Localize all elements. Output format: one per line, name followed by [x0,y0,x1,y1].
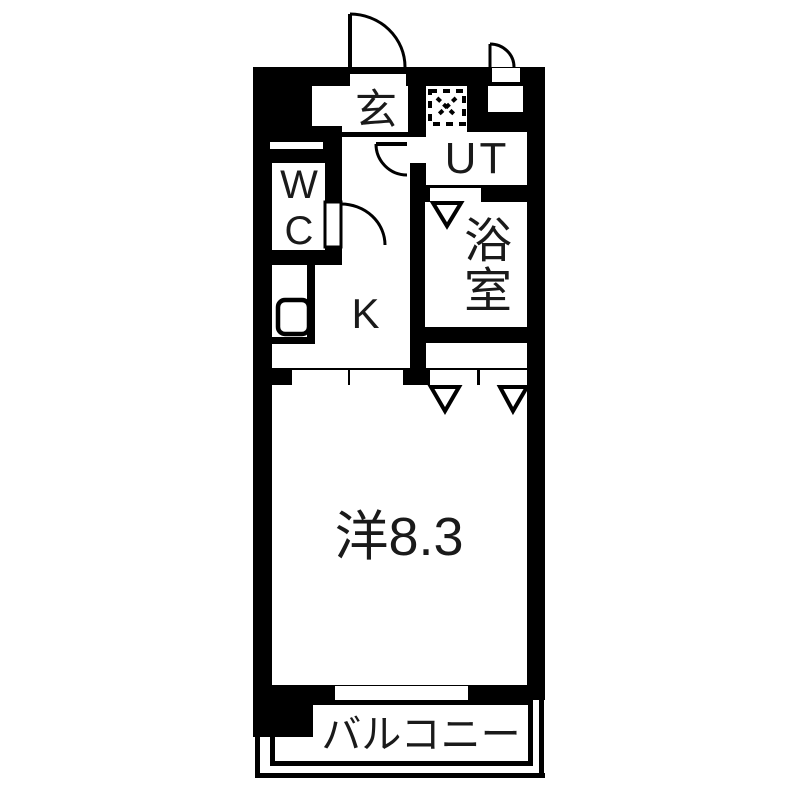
bathroom-label: 浴室 [457,212,507,318]
main-room-label: 洋8.3 [289,508,509,566]
floor-plan: 玄 UT WC 浴室 K 洋8.3 バルコニー [0,0,800,800]
kitchen-sink-icon [278,300,309,334]
kitchen-counter-line-h [272,337,315,344]
balcony-label: バルコニー [305,712,537,758]
ut-label: UT [430,137,524,181]
wc-door-swing-icon [341,204,385,245]
hall-door-swing-icon [376,144,407,175]
genkan-label: 玄 [348,89,404,131]
wc-label: WC [276,166,322,252]
folding-door-icon-closet-2 [500,387,527,411]
folding-door-icon-closet-1 [431,387,459,411]
wc-door-leaf [325,202,341,247]
entrance-door-swing-icon [350,14,405,67]
kitchen-label: K [338,292,393,336]
meterbox-door-swing-icon [490,44,514,67]
